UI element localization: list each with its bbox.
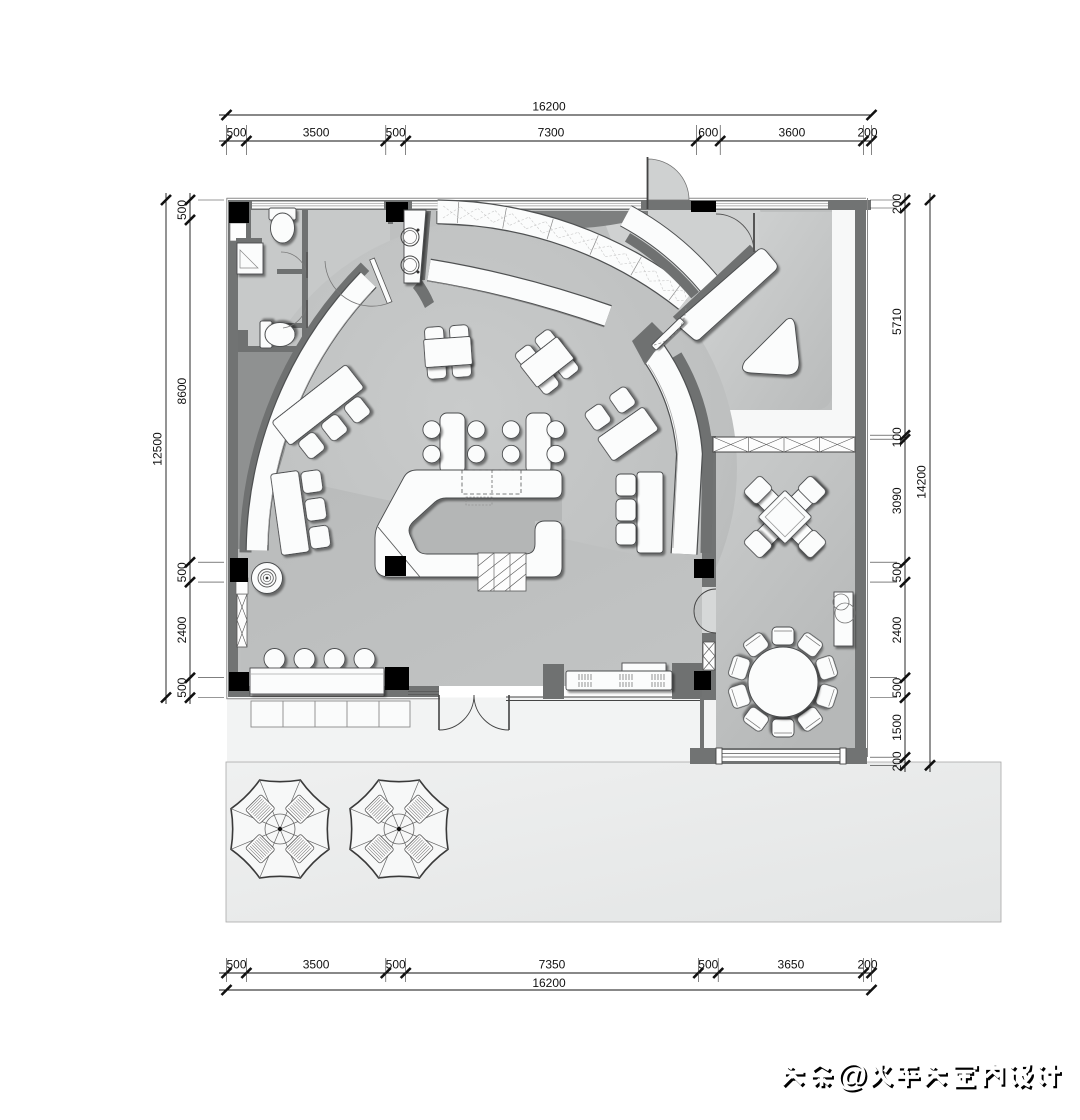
svg-text:500: 500 — [226, 958, 246, 972]
svg-text:3600: 3600 — [779, 126, 806, 140]
svg-text:500: 500 — [890, 677, 904, 697]
svg-text:7300: 7300 — [538, 126, 565, 140]
svg-text:7350: 7350 — [539, 958, 566, 972]
svg-text:500: 500 — [175, 200, 189, 220]
svg-text:600: 600 — [698, 126, 718, 140]
svg-text:500: 500 — [698, 958, 718, 972]
svg-text:@: @ — [837, 1056, 868, 1092]
svg-text:16200: 16200 — [532, 976, 566, 990]
svg-text:5710: 5710 — [890, 308, 904, 335]
svg-text:8600: 8600 — [175, 377, 189, 404]
svg-text:100: 100 — [890, 427, 904, 447]
svg-text:3650: 3650 — [778, 958, 805, 972]
svg-text:3090: 3090 — [890, 487, 904, 514]
svg-text:500: 500 — [386, 126, 406, 140]
svg-text:500: 500 — [226, 126, 246, 140]
svg-text:2400: 2400 — [175, 616, 189, 643]
svg-text:14200: 14200 — [915, 465, 929, 499]
svg-text:1500: 1500 — [890, 714, 904, 741]
svg-text:500: 500 — [386, 958, 406, 972]
svg-text:16200: 16200 — [532, 100, 566, 114]
svg-text:3500: 3500 — [303, 126, 330, 140]
svg-text:500: 500 — [890, 562, 904, 582]
svg-text:500: 500 — [175, 677, 189, 697]
svg-text:500: 500 — [175, 562, 189, 582]
svg-text:3500: 3500 — [303, 958, 330, 972]
svg-text:2400: 2400 — [890, 616, 904, 643]
svg-text:12500: 12500 — [151, 432, 165, 466]
